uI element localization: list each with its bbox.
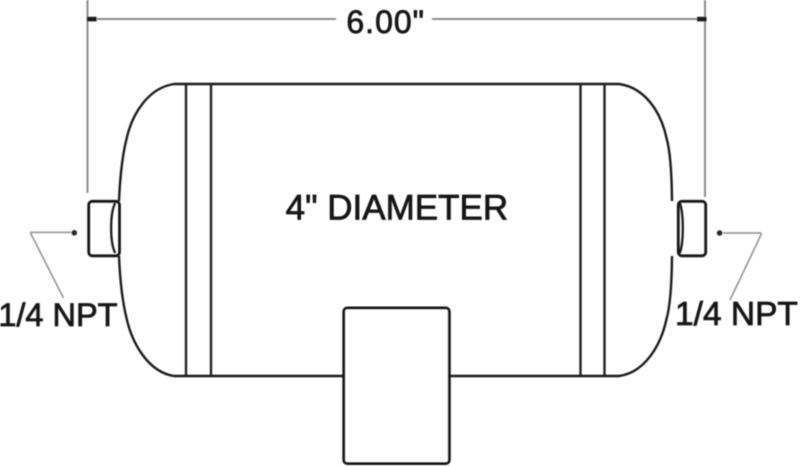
svg-text:4" DIAMETER: 4" DIAMETER — [286, 188, 508, 227]
svg-text:1/4 NPT: 1/4 NPT — [0, 297, 118, 333]
svg-text:6.00": 6.00" — [346, 4, 425, 40]
svg-text:1/4 NPT: 1/4 NPT — [675, 296, 798, 333]
